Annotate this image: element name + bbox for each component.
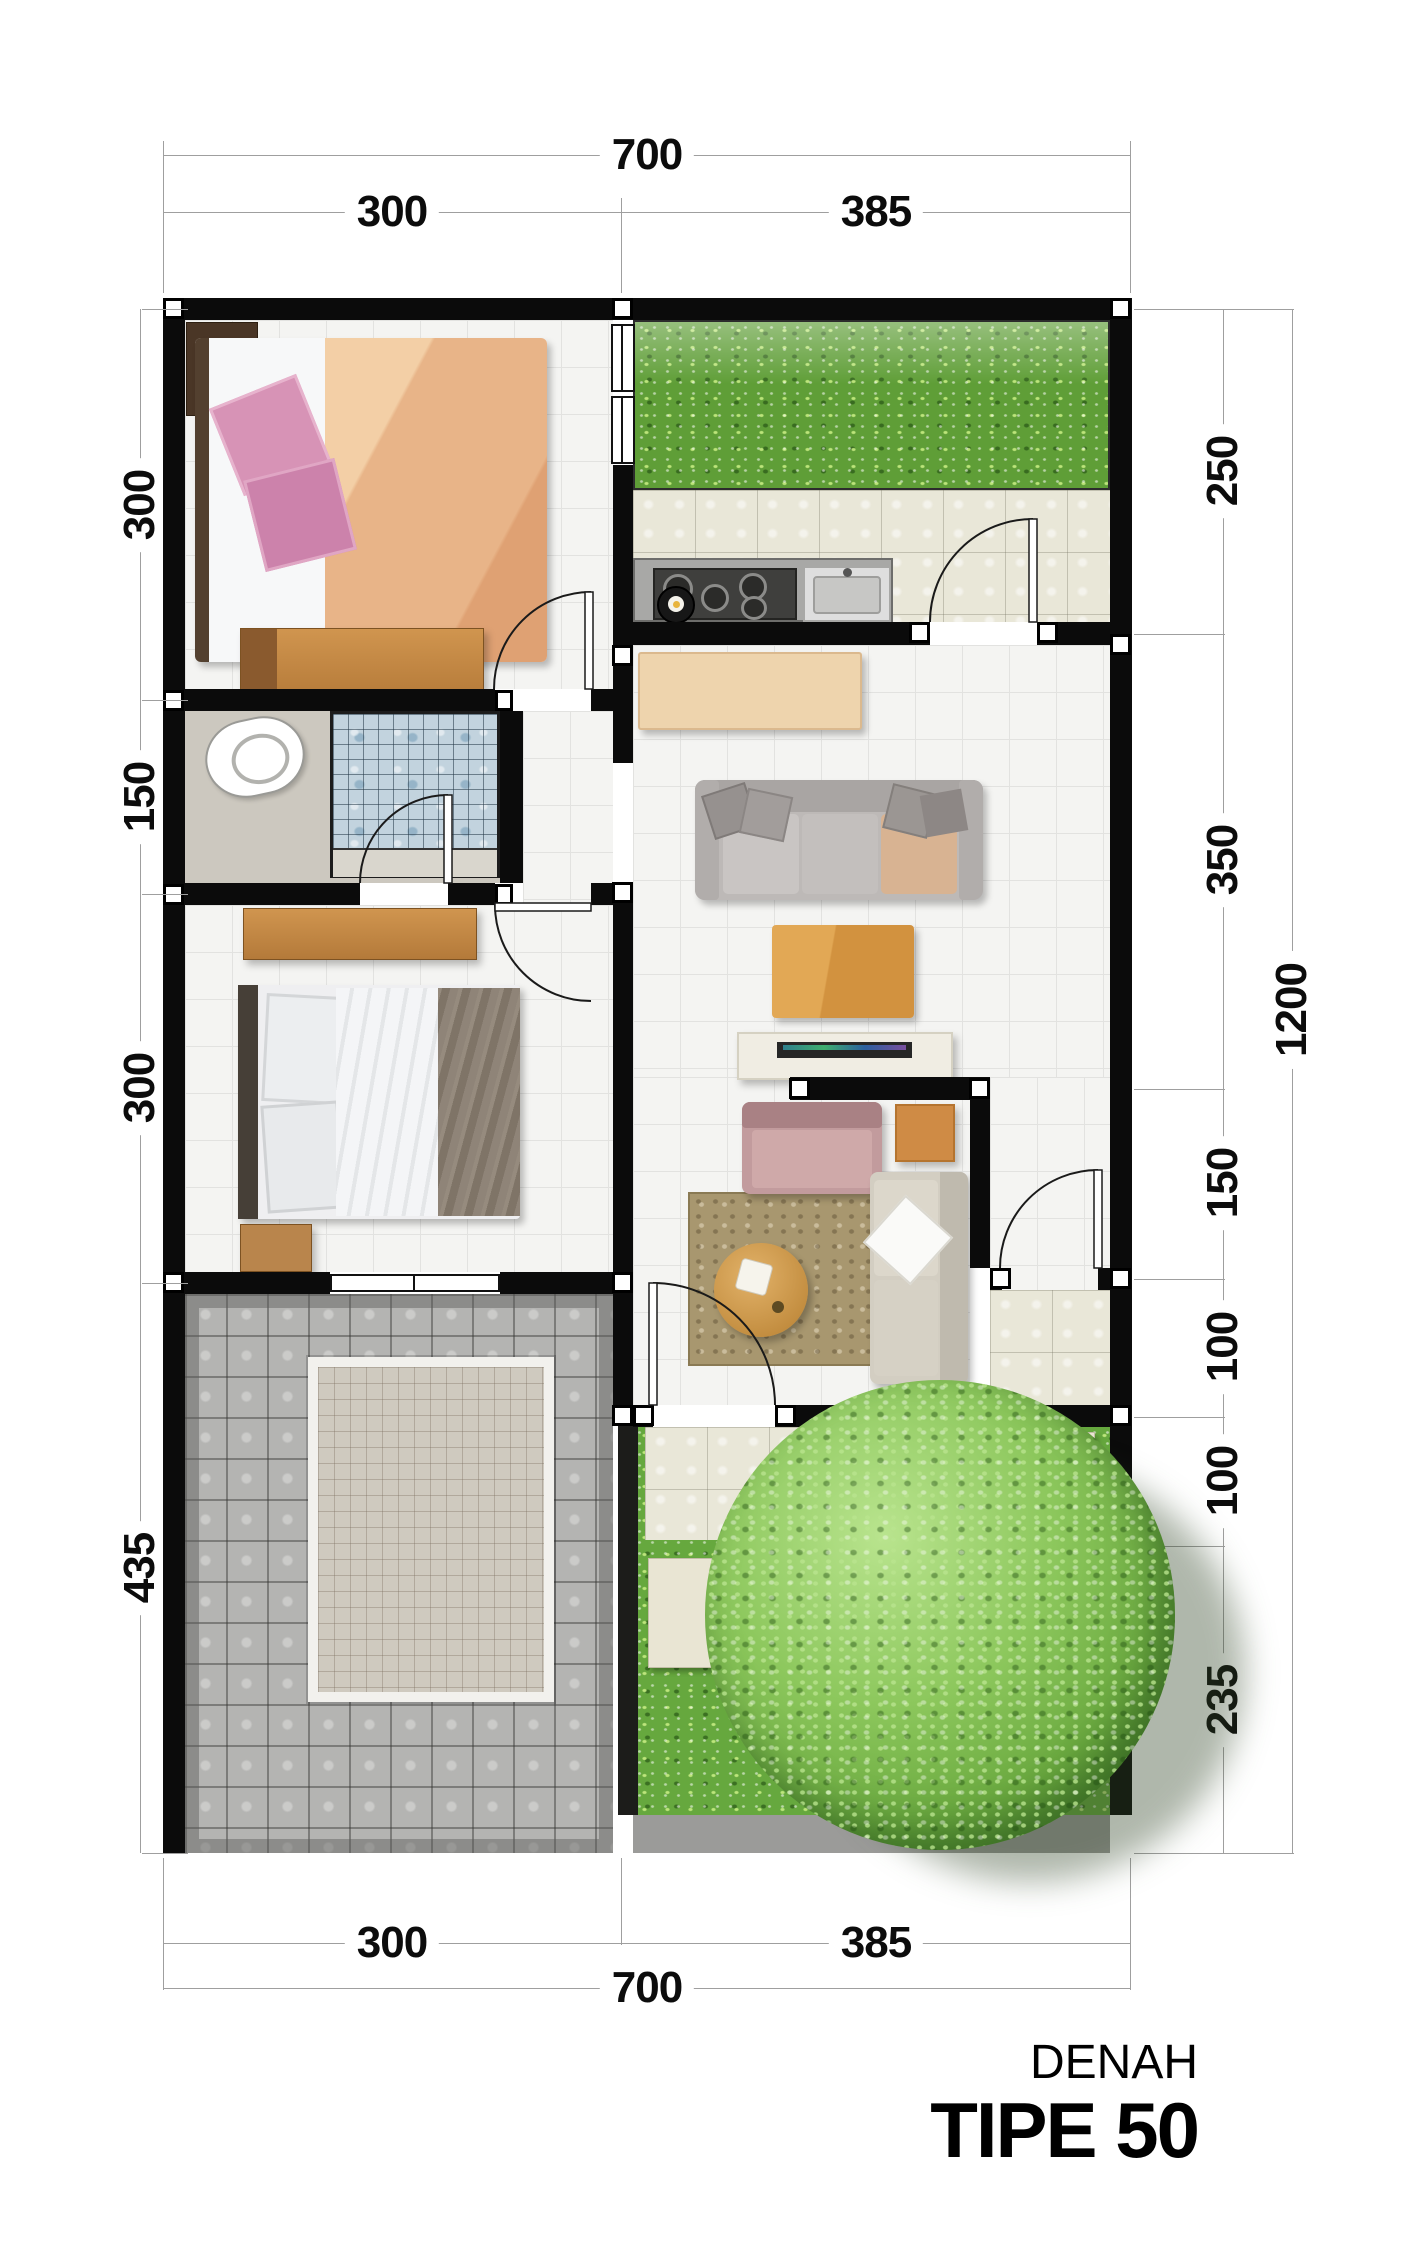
door-leaf-bathroom <box>444 795 452 883</box>
door-leaf-kitchen <box>1029 519 1037 622</box>
plan-title-line1: DENAH <box>1030 2035 1198 2090</box>
dim-left-300a: 300 <box>118 458 162 552</box>
dim-right-100b: 100 <box>1201 1434 1245 1528</box>
dim-line-right-outer <box>1292 309 1293 1853</box>
witness-line <box>1134 1089 1225 1090</box>
witness-line <box>621 198 622 293</box>
door-arc-bathroom <box>360 795 448 883</box>
dim-left-150: 150 <box>118 750 162 844</box>
dim-top-385: 385 <box>829 190 923 234</box>
door-arc-side <box>1000 1170 1098 1268</box>
dim-line-top-inner <box>163 212 1131 213</box>
witness-line <box>163 1858 164 1990</box>
door-arc-bedroom2 <box>495 905 591 1001</box>
witness-line <box>163 141 164 293</box>
witness-line <box>142 1853 188 1854</box>
door-arc-main <box>653 1283 775 1405</box>
door-leaf-bedroom1 <box>585 592 593 689</box>
witness-line <box>142 894 188 895</box>
dim-line-bottom-inner <box>163 1943 1131 1944</box>
dim-bottom-385: 385 <box>829 1921 923 1965</box>
witness-line <box>1134 1279 1225 1280</box>
dim-right-350: 350 <box>1201 813 1245 907</box>
door-leaf-bedroom2 <box>495 903 591 911</box>
tree <box>705 1380 1175 1850</box>
dim-right-250: 250 <box>1201 424 1245 518</box>
door-leaf-side <box>1094 1170 1102 1268</box>
door-leaf-main <box>649 1283 657 1405</box>
dim-left-435: 435 <box>118 1521 162 1615</box>
witness-line <box>142 700 188 701</box>
witness-line <box>1130 141 1131 293</box>
witness-line <box>142 309 188 310</box>
dim-bottom-300: 300 <box>345 1921 439 1965</box>
witness-line <box>621 1858 622 1945</box>
dim-left-300b: 300 <box>118 1041 162 1135</box>
witness-line <box>1130 1858 1131 1990</box>
dim-top-300: 300 <box>345 190 439 234</box>
floor-plan: 700 300 385 300 385 700 300 150 300 435 … <box>0 0 1417 2244</box>
dim-bottom-total: 700 <box>600 1966 694 2010</box>
witness-line <box>1134 1853 1294 1854</box>
tree-foliage-texture <box>705 1380 1175 1850</box>
witness-line <box>1134 1417 1225 1418</box>
dim-right-150: 150 <box>1201 1136 1245 1230</box>
plan-title-line2: TIPE 50 <box>930 2085 1198 2176</box>
witness-line <box>1134 309 1294 310</box>
door-arc-bedroom1 <box>494 592 591 689</box>
dim-right-total: 1200 <box>1270 951 1314 1069</box>
dim-top-total: 700 <box>600 133 694 177</box>
witness-line <box>142 1283 188 1284</box>
door-arc-kitchen <box>930 519 1033 622</box>
witness-line <box>1134 634 1225 635</box>
dim-right-100a: 100 <box>1201 1300 1245 1394</box>
